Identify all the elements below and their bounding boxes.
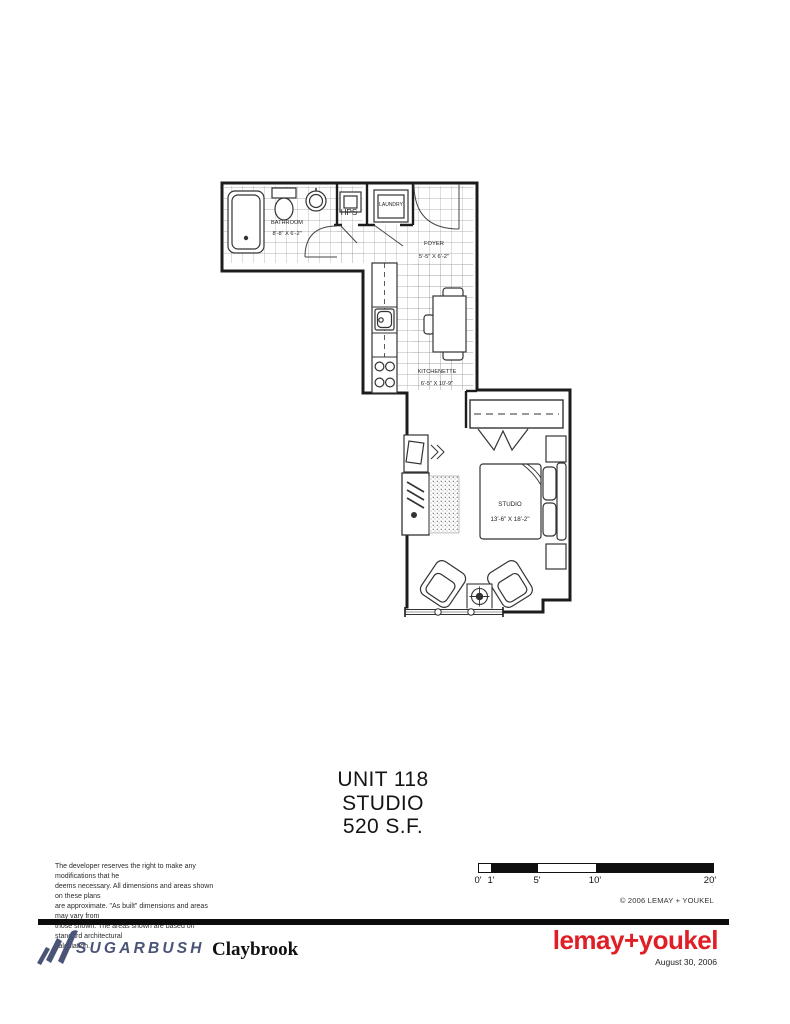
bathroom-dims: 8'-8" X 6'-2" bbox=[272, 231, 301, 237]
bed-icon bbox=[480, 463, 566, 540]
footer-divider bbox=[38, 919, 729, 925]
kitchen-counter bbox=[372, 263, 397, 393]
laundry-label: LAUNDRY bbox=[379, 202, 403, 208]
fireplace-icon bbox=[402, 473, 459, 535]
scale-tick-20: 20' bbox=[704, 875, 716, 886]
kitchenette-label: KITCHENETTE bbox=[418, 369, 457, 375]
kitchenette-dims: 6'-5" X 10'-9" bbox=[421, 381, 453, 387]
side-table-icon bbox=[467, 584, 492, 609]
claybrook-wordmark: Claybrook bbox=[212, 939, 298, 961]
scale-tick-1: 1' bbox=[487, 875, 494, 886]
sugarbush-wordmark: SUGARBUSH bbox=[76, 940, 205, 958]
copyright-notice: © 2006 LEMAY + YOUKEL bbox=[538, 896, 714, 905]
unit-type: STUDIO bbox=[283, 792, 483, 816]
tv-stand-icon bbox=[404, 435, 444, 472]
foyer-dims: 5'-5" X 6'-2" bbox=[419, 254, 449, 260]
plan-date: August 30, 2006 bbox=[655, 957, 717, 967]
toilet-icon bbox=[272, 188, 296, 198]
studio-label: STUDIO bbox=[498, 501, 522, 508]
scale-bar bbox=[478, 863, 714, 873]
scale-tick-10: 10' bbox=[589, 875, 601, 886]
architect-logo: lemay+youkel bbox=[553, 925, 718, 956]
unit-area: 520 S.F. bbox=[283, 815, 483, 839]
foyer-label: FOYER bbox=[424, 241, 444, 247]
sugarbush-logo-icon bbox=[36, 930, 80, 968]
unit-number: UNIT 118 bbox=[283, 768, 483, 792]
bathroom-label: BATHROOM bbox=[271, 220, 303, 226]
studio-dims: 13'-6" X 18'-2" bbox=[490, 516, 529, 523]
scale-tick-5: 5' bbox=[533, 875, 540, 886]
unit-title-block: UNIT 118 STUDIO 520 S.F. bbox=[283, 768, 483, 839]
scale-tick-0: 0' bbox=[474, 875, 481, 886]
window-icon bbox=[405, 607, 503, 617]
hps-label: HPS bbox=[341, 208, 357, 217]
armchair-left-icon bbox=[418, 558, 469, 610]
floor-plan: BATHROOM 8'-8" X 6'-2" HPS LAUNDRY FOYER… bbox=[195, 155, 595, 645]
closet-doors-icon bbox=[478, 429, 528, 450]
